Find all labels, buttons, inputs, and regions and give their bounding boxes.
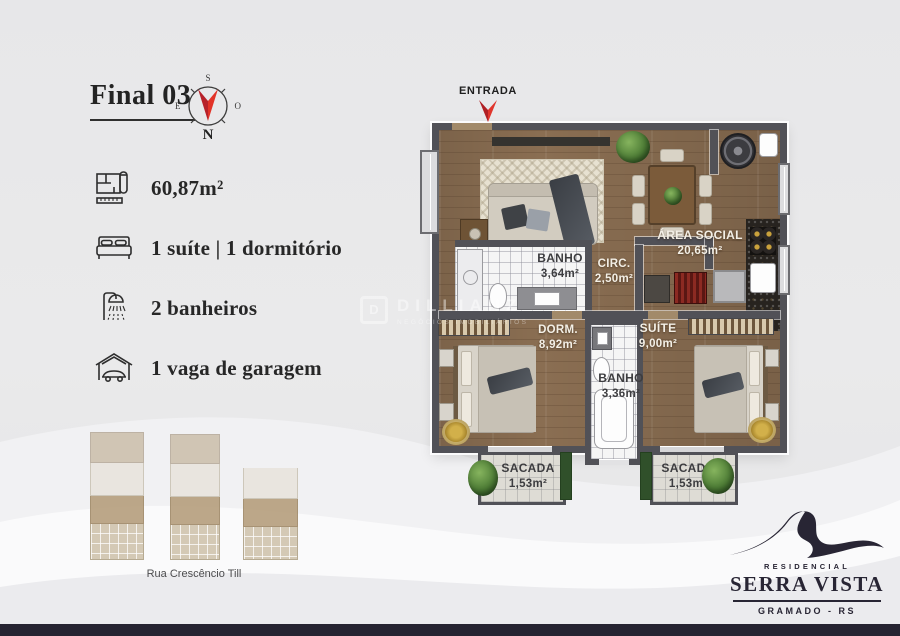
site-plan-block xyxy=(170,434,220,464)
shower-stall xyxy=(457,249,483,313)
bathtub-inner xyxy=(601,396,627,442)
dining-chair xyxy=(632,203,645,225)
feature-area: 60,87m² xyxy=(92,166,223,210)
kitchen-sink xyxy=(750,263,776,293)
footer-bar xyxy=(0,624,900,636)
room-area: 3,36m² xyxy=(592,387,650,402)
garage-icon xyxy=(92,346,136,390)
room-area: 20,65m² xyxy=(650,244,750,259)
room-area: 1,53m² xyxy=(497,477,559,492)
floor-plan: ÁREA SOCIAL 20,65m² BANHO 3,64m² CIRC. 2… xyxy=(432,123,787,453)
pillow xyxy=(526,208,551,231)
compass-s: S xyxy=(205,73,210,83)
sacada-plant xyxy=(468,460,498,496)
compass-n: N xyxy=(203,127,214,144)
nightstand xyxy=(439,349,454,367)
feature-garage: 1 vaga de garagem xyxy=(92,346,322,390)
feature-area-label: 60,87m² xyxy=(151,176,223,201)
room-label-suite: SUÍTE 9,00m² xyxy=(630,321,686,352)
planter-strip xyxy=(640,452,652,500)
room-name: CIRC. xyxy=(588,257,640,272)
vanity-sink xyxy=(597,332,608,345)
logo-kicker: RESIDENCIAL xyxy=(718,562,896,571)
feature-bedrooms-label: 1 suíte | 1 dormitório xyxy=(151,236,342,261)
kitchen-window-1 xyxy=(778,163,790,215)
sofa xyxy=(488,183,598,245)
feature-bedrooms: 1 suíte | 1 dormitório xyxy=(92,226,342,270)
room-name: BANHO xyxy=(592,371,650,387)
page: Final 03 S O E N 60,87m² xyxy=(0,0,900,636)
kitchen-window-2 xyxy=(778,245,790,295)
hall-cabinet xyxy=(644,275,670,303)
floorplan-icon xyxy=(92,166,136,210)
wardrobe-suite xyxy=(688,318,774,335)
brand-logo: RESIDENCIAL SERRA VISTA GRAMADO - RS xyxy=(718,505,896,616)
logo-rule xyxy=(733,600,881,602)
entrance-arrow-icon xyxy=(477,98,499,124)
nightstand xyxy=(765,349,779,367)
room-label-banho-suite: BANHO 3,36m² xyxy=(592,371,650,402)
toilet xyxy=(489,283,507,309)
room-name: DORM. xyxy=(528,323,588,338)
vanity xyxy=(592,327,612,350)
site-plan-block xyxy=(90,496,144,524)
vanity-sink xyxy=(534,292,560,306)
site-plan-block xyxy=(90,463,144,496)
room-name: ÁREA SOCIAL xyxy=(650,228,750,244)
site-plan-block xyxy=(170,525,220,560)
site-plan-block xyxy=(170,497,220,525)
street-label: Rua Crescêncio Till xyxy=(114,568,274,580)
suite-door-opening xyxy=(648,311,678,319)
bed-pillow xyxy=(749,351,760,386)
stove xyxy=(750,227,776,255)
nightstand xyxy=(439,403,454,421)
room-label-area-social: ÁREA SOCIAL 20,65m² xyxy=(650,228,750,259)
dining-table xyxy=(648,165,696,225)
laundry-wall xyxy=(710,130,718,174)
bed-icon xyxy=(92,226,136,270)
shower-icon xyxy=(92,286,136,330)
plant xyxy=(616,131,650,163)
sacada-plant xyxy=(702,458,734,494)
site-plan-block xyxy=(90,524,144,560)
site-plan-block xyxy=(243,468,298,499)
lamp xyxy=(469,228,481,240)
feature-bathrooms-label: 2 banheiros xyxy=(151,296,257,321)
vanity xyxy=(517,287,577,310)
site-plan-block xyxy=(243,499,298,527)
bathroom-window xyxy=(599,459,629,465)
compass-e: E xyxy=(175,101,181,111)
site-plan-block xyxy=(243,527,298,560)
site-plan-building-1 xyxy=(90,432,144,560)
room-area: 8,92m² xyxy=(528,338,588,353)
compass-o: O xyxy=(235,101,242,111)
room-label-circ: CIRC. 2,50m² xyxy=(588,257,640,287)
site-plan-block xyxy=(170,464,220,497)
living-window xyxy=(420,150,439,234)
washing-machine xyxy=(720,133,756,169)
planter-strip xyxy=(560,452,572,500)
logo-city: GRAMADO - RS xyxy=(718,606,896,616)
feature-bathrooms: 2 banheiros xyxy=(92,286,257,330)
watermark-logo-icon: D xyxy=(360,296,388,324)
room-area: 9,00m² xyxy=(630,337,686,352)
dining-chair xyxy=(699,175,712,197)
round-rug xyxy=(442,419,470,445)
round-rug xyxy=(748,417,776,443)
bed-pillow xyxy=(461,351,472,386)
fridge xyxy=(713,270,746,303)
logo-name: SERRA VISTA xyxy=(718,572,896,597)
room-label-sacada-left: SACADA 1,53m² xyxy=(497,461,559,492)
table-plant xyxy=(664,187,682,205)
room-area: 2,50m² xyxy=(588,272,640,287)
compass-rose: S O E N xyxy=(174,74,242,142)
site-plan-block xyxy=(90,432,144,463)
dining-chair xyxy=(660,149,684,162)
feature-garage-label: 1 vaga de garagem xyxy=(151,356,322,381)
entrance-label: ENTRADA xyxy=(450,85,526,97)
wardrobe-dorm xyxy=(438,319,510,336)
room-name: SACADA xyxy=(497,461,559,477)
hall-rug xyxy=(674,272,707,304)
room-name: SUÍTE xyxy=(630,321,686,337)
mountain-swoosh-icon xyxy=(727,505,887,561)
dining-chair xyxy=(632,175,645,197)
site-plan-building-3 xyxy=(243,468,298,560)
shower-drain xyxy=(463,270,478,285)
laundry-sink xyxy=(759,133,778,157)
site-plan-building-2 xyxy=(170,434,220,560)
dining-chair xyxy=(699,203,712,225)
room-label-dorm: DORM. 8,92m² xyxy=(528,323,588,353)
dorm-door-opening xyxy=(552,311,582,319)
tv-panel xyxy=(492,137,610,146)
bed-dorm xyxy=(457,345,535,433)
entrance-door-opening xyxy=(452,123,492,130)
